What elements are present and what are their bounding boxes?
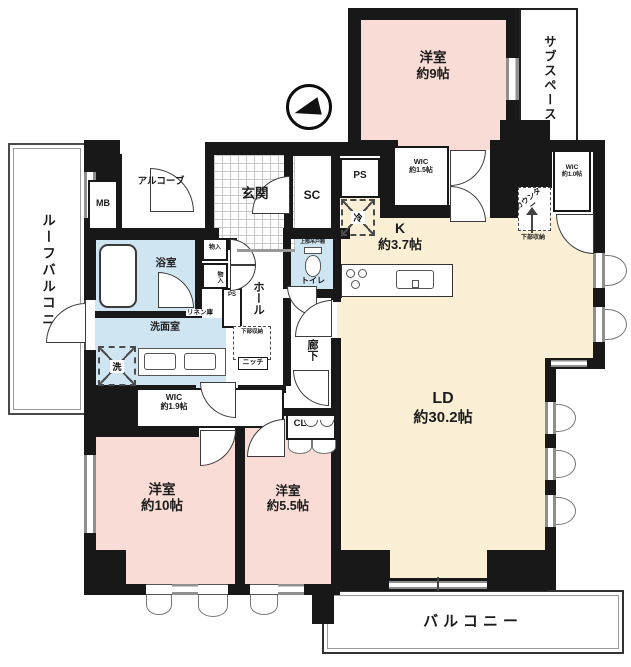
bathtub-icon <box>99 244 137 308</box>
window-swing-icon <box>556 404 576 432</box>
wall <box>545 480 556 495</box>
window <box>545 495 556 527</box>
wic10-label: WIC 約1.0帖 <box>554 164 590 179</box>
toilet-label: トイレ <box>293 276 333 285</box>
ps-hall-label: PS <box>223 292 241 299</box>
window <box>593 307 605 342</box>
kitchen-label: K 約3.7帖 <box>362 220 438 252</box>
bath-label: 浴室 <box>137 257 195 269</box>
window-swing-icon <box>556 450 576 478</box>
stove-burner-icon <box>358 269 367 278</box>
window-swing-icon <box>605 255 627 286</box>
wall <box>283 298 291 386</box>
wall <box>95 428 199 437</box>
wic10-name: WIC <box>554 164 590 172</box>
wall <box>312 584 334 624</box>
counter-lower-storage-label: 下部収納 <box>510 235 556 242</box>
vanity-sink-icon <box>144 353 176 370</box>
casement-window <box>146 584 172 595</box>
wall <box>283 239 291 289</box>
room-bedroom9 <box>361 20 506 150</box>
wall <box>348 8 361 152</box>
bedroom55-label: 洋室 約5.5帖 <box>246 484 330 514</box>
storage-b-label: 物入 <box>208 266 222 288</box>
ld-name: LD <box>375 390 511 409</box>
wic-1-0-box <box>553 150 591 212</box>
sub-space-label: サブスペース <box>541 35 556 122</box>
roof-balcony-inner: ルーフバルコニー <box>13 148 81 410</box>
wall <box>195 234 202 312</box>
shoe-closet-label: SC <box>296 188 328 202</box>
wall <box>380 156 393 218</box>
window-swing-icon <box>250 595 278 615</box>
ld-size: 約30.2帖 <box>375 409 511 427</box>
window <box>551 360 587 367</box>
toilet-upper-cabinet-label: 上部吊戸棚 <box>291 240 334 246</box>
window <box>506 58 519 100</box>
window <box>593 253 605 288</box>
wic19-name: WIC <box>142 392 206 402</box>
bedroom55-name: 洋室 <box>246 484 330 499</box>
toilet-bowl-icon <box>305 255 321 277</box>
kitchen-size: 約3.7帖 <box>362 237 438 252</box>
wall <box>331 142 340 234</box>
corridor-label: 廊下 <box>296 318 318 382</box>
casement-window <box>250 584 278 595</box>
linen-label: リネン庫 <box>180 309 220 317</box>
wall <box>235 424 245 584</box>
bedroom10-size: 約10帖 <box>108 498 216 514</box>
roof-balcony: ルーフバルコニー <box>8 143 86 415</box>
vanity-sink-icon <box>184 353 216 370</box>
wall <box>506 8 519 58</box>
wall <box>293 142 397 156</box>
toilet-tank-icon <box>304 247 322 254</box>
wic10-size: 約1.0帖 <box>554 172 590 179</box>
wall <box>545 434 556 448</box>
kitchen-name: K <box>362 220 438 237</box>
casement-window <box>198 584 228 595</box>
wall <box>593 288 605 307</box>
window <box>172 584 198 595</box>
window-swing-icon <box>146 595 172 615</box>
floor-plan: ルーフバルコニー バルコニー サブスペース <box>0 0 631 667</box>
wic15-name: WIC <box>395 158 447 167</box>
wic-1-5-box <box>393 146 449 207</box>
balcony-label: バルコニー <box>423 613 523 631</box>
north-arrow-needle <box>292 97 322 121</box>
window <box>278 584 304 595</box>
washer-space: 洗 <box>98 346 136 386</box>
bedroom9-name: 洋室 <box>385 50 481 66</box>
window <box>545 402 556 434</box>
niche-label: ニッチ <box>238 359 268 367</box>
wic19-size: 約1.9帖 <box>142 402 206 411</box>
bedroom55-size: 約5.5帖 <box>246 499 330 514</box>
bedroom9-label: 洋室 約9帖 <box>385 50 481 81</box>
closet-label: CL <box>289 418 311 429</box>
bedroom9-size: 約9帖 <box>385 66 481 81</box>
counter-arrow-stem <box>531 215 533 233</box>
wall <box>331 338 341 584</box>
washroom-label: 洗面室 <box>128 322 202 334</box>
wall <box>490 140 518 218</box>
wall <box>228 584 250 595</box>
storage-a-label: 物入 <box>202 245 228 252</box>
wall <box>331 294 341 300</box>
mb-label: MB <box>88 198 118 209</box>
wall <box>84 385 136 432</box>
wall <box>205 142 214 240</box>
wic19-label: WIC 約1.9帖 <box>142 392 206 411</box>
wall <box>518 140 552 188</box>
door-swing-icon <box>450 186 486 222</box>
sliding-door-tick <box>437 577 439 591</box>
wall <box>84 140 120 154</box>
door-swing-icon <box>150 168 194 212</box>
window-swing-icon <box>198 595 228 617</box>
washer-label: 洗 <box>110 360 123 373</box>
wall <box>84 550 126 595</box>
wic15-label: WIC 約1.5帖 <box>395 158 447 175</box>
kitchen-tap-icon <box>412 280 419 288</box>
stove-burner-icon <box>346 269 355 278</box>
bifold-door-icon <box>288 440 312 454</box>
wall <box>487 550 547 591</box>
wic15-size: 約1.5帖 <box>395 167 447 175</box>
window <box>545 448 556 480</box>
bifold-door-icon <box>312 440 336 454</box>
bedroom10-name: 洋室 <box>108 482 216 498</box>
ps-label: PS <box>346 170 374 182</box>
balcony: バルコニー <box>322 590 624 654</box>
north-arrow-icon <box>286 84 332 130</box>
entrance-label: 玄関 <box>222 186 288 202</box>
hall-lower-storage-label: 下部収納 <box>234 329 270 335</box>
balcony-inner: バルコニー <box>327 595 619 649</box>
bedroom10-label: 洋室 約10帖 <box>108 482 216 514</box>
window-swing-icon <box>605 309 627 340</box>
door-swing-icon <box>450 150 486 186</box>
alcove-label: アルコーブ <box>118 176 204 187</box>
living-dining-label: LD 約30.2帖 <box>375 390 511 427</box>
window-swing-icon <box>556 497 576 525</box>
wall <box>333 550 390 591</box>
window <box>84 455 96 533</box>
linen-text: リネン庫 <box>186 309 214 316</box>
wall <box>348 8 518 20</box>
stove-burner-icon <box>351 280 360 289</box>
wall <box>593 140 605 253</box>
